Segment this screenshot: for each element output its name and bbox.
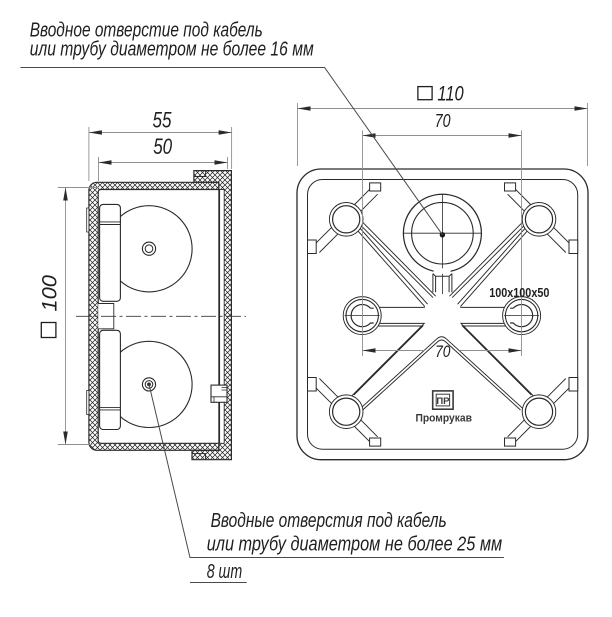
svg-text:Промрукав: Промрукав xyxy=(416,413,473,425)
svg-text:или трубу диаметром не более 2: или трубу диаметром не более 25 мм xyxy=(207,533,503,556)
svg-text:или трубу диаметром не более 1: или трубу диаметром не более 16 мм xyxy=(30,37,314,60)
svg-text:8 шт: 8 шт xyxy=(207,560,243,583)
svg-text:100x100x50: 100x100x50 xyxy=(489,286,549,300)
svg-text:50: 50 xyxy=(153,134,173,159)
svg-text:55: 55 xyxy=(153,107,173,132)
svg-text:70: 70 xyxy=(435,111,451,131)
svg-text:110: 110 xyxy=(437,83,464,106)
svg-text:100: 100 xyxy=(38,275,62,312)
svg-text:70: 70 xyxy=(435,342,451,361)
svg-text:ПР: ПР xyxy=(436,396,450,407)
svg-text:Вводные отверстия под кабель: Вводные отверстия под кабель xyxy=(211,509,447,532)
